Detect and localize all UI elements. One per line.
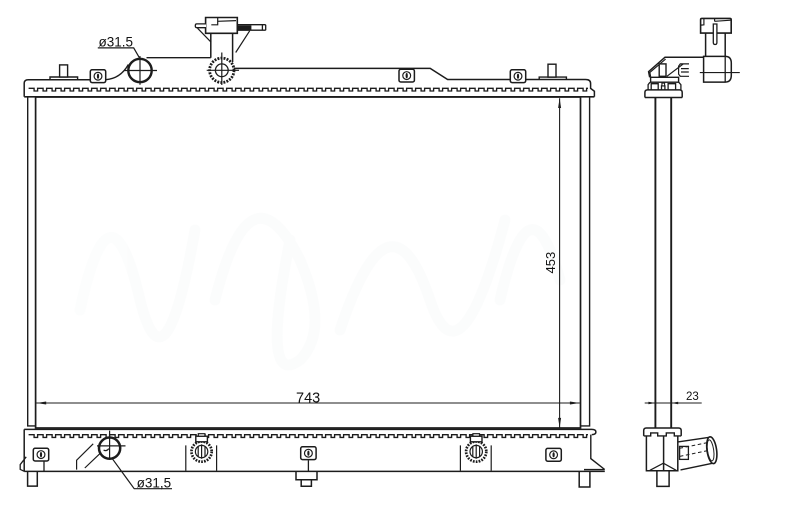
svg-text:ø31,5: ø31,5: [137, 476, 172, 491]
svg-text:453: 453: [543, 252, 558, 274]
svg-text:23: 23: [686, 391, 699, 403]
svg-text:743: 743: [296, 390, 320, 406]
svg-text:ø31.5: ø31.5: [99, 34, 134, 49]
